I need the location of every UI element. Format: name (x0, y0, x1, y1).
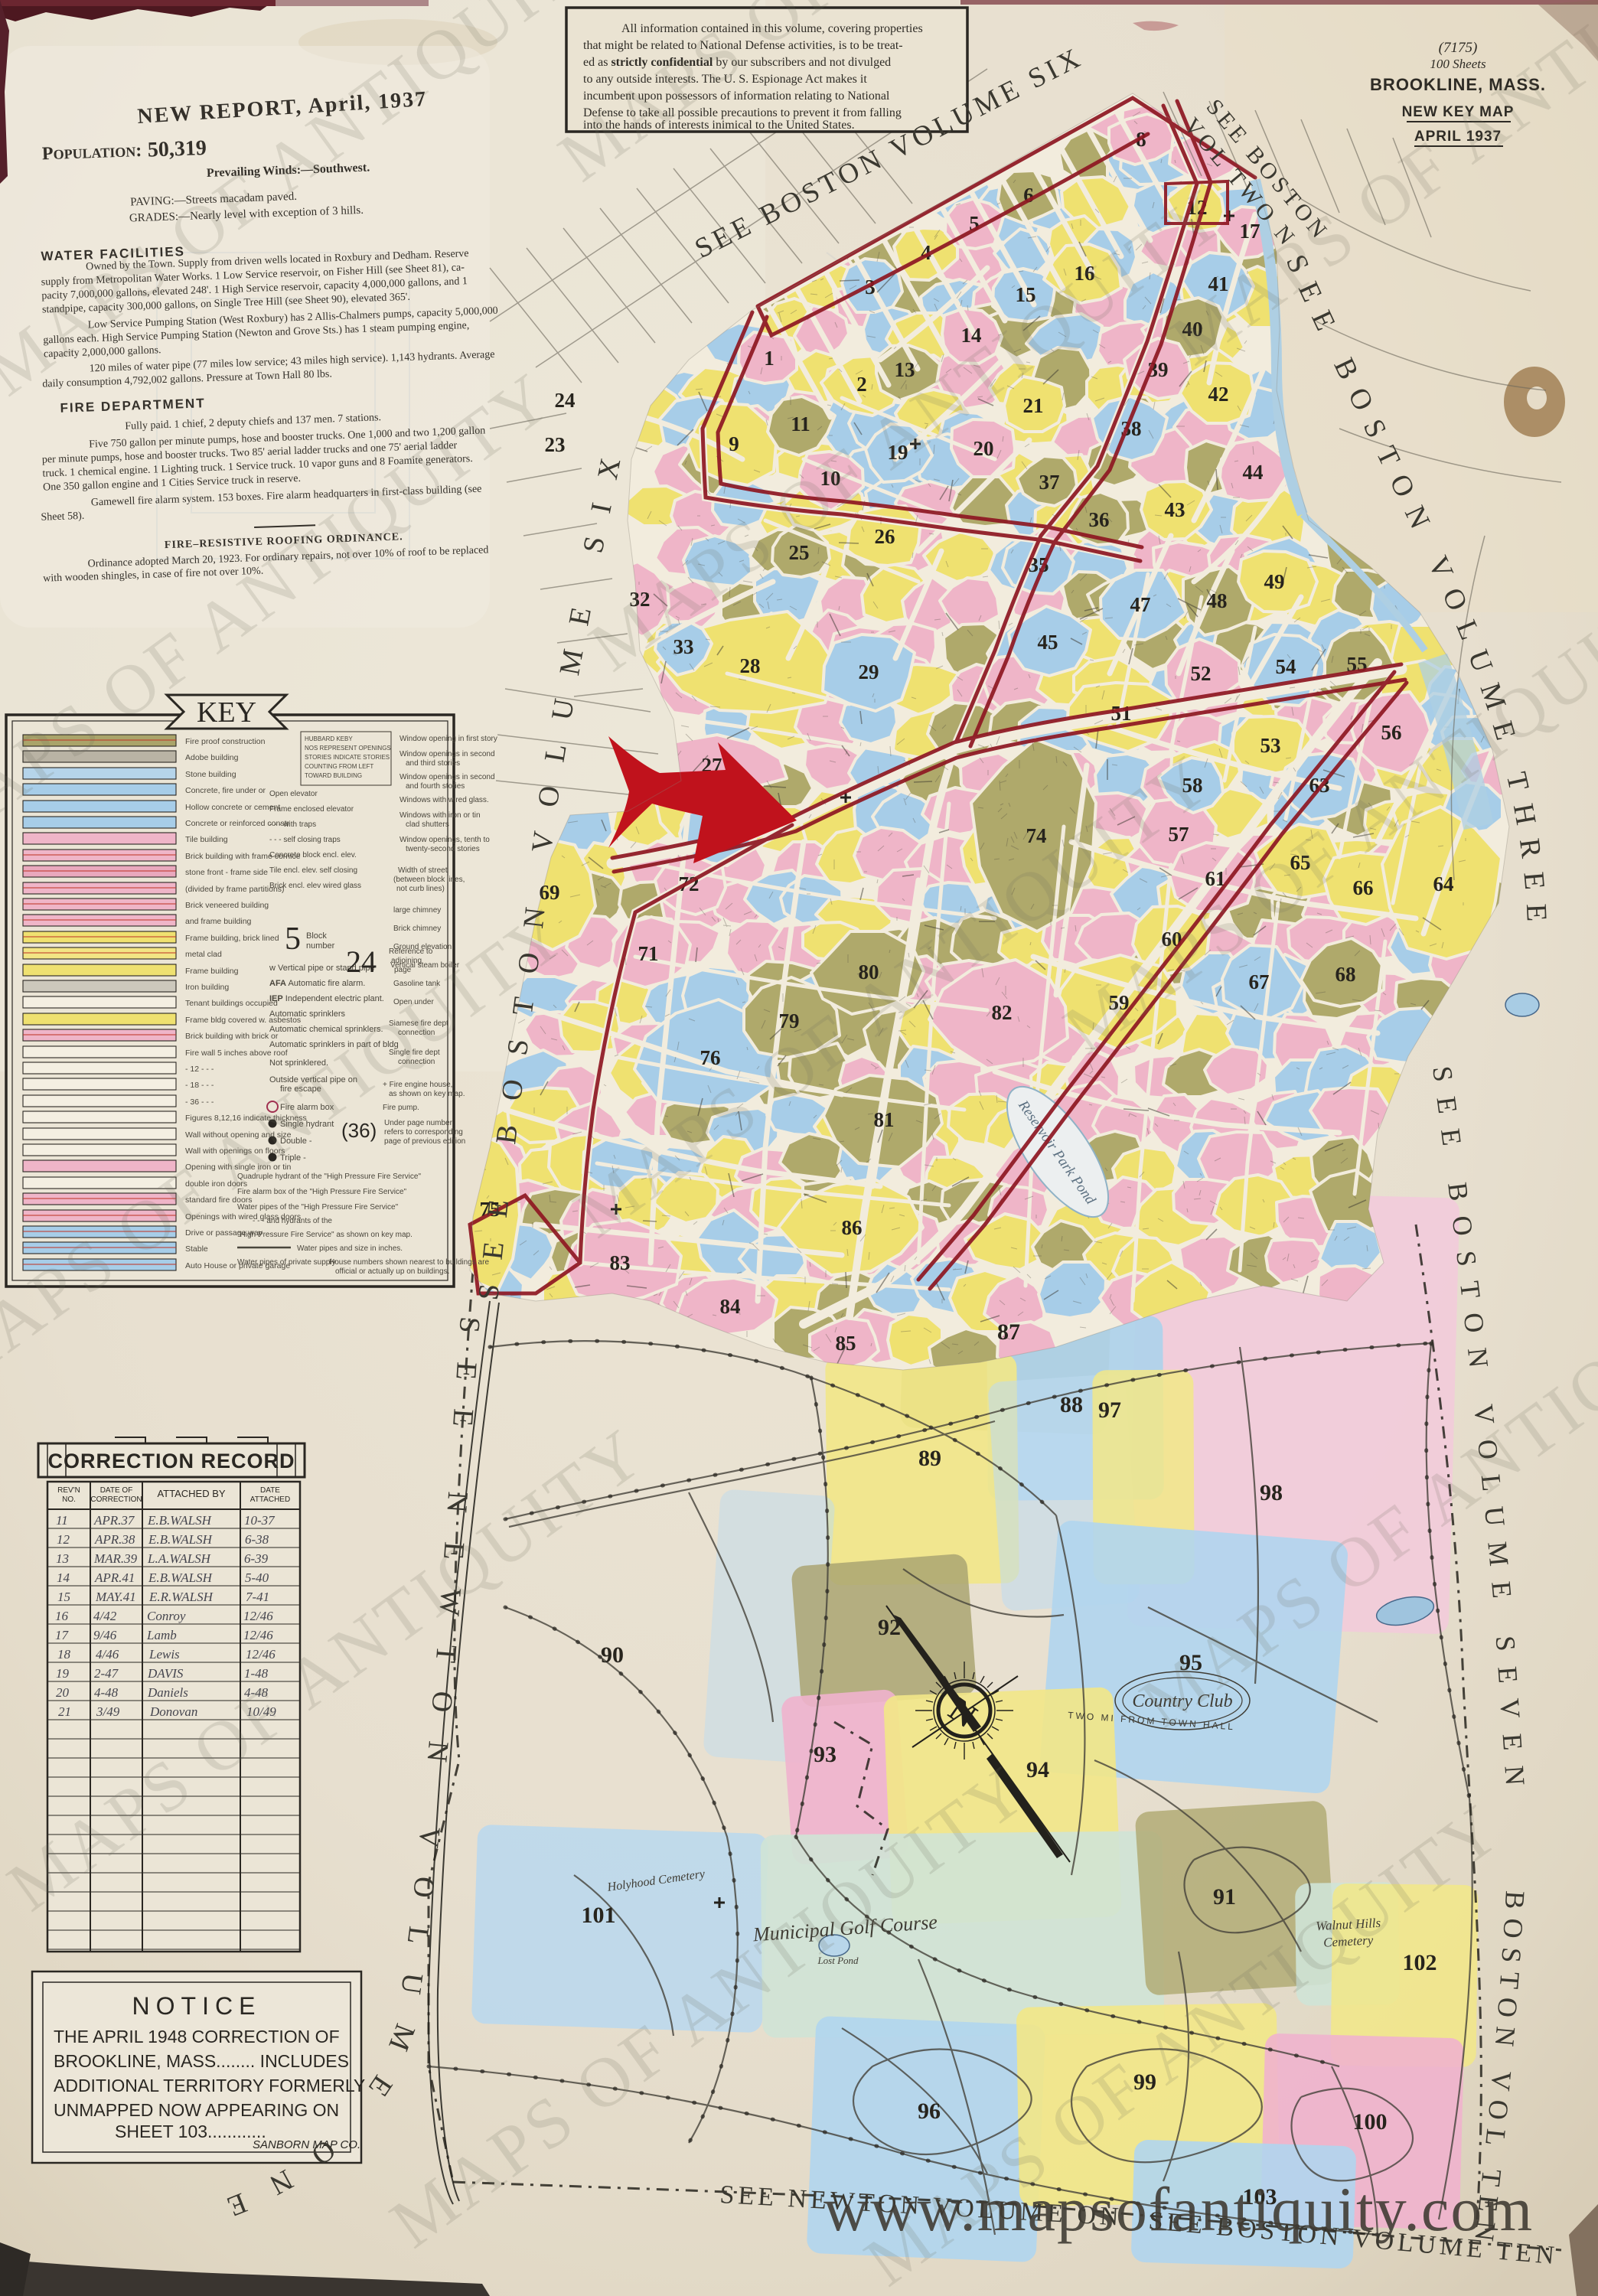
svg-text:48: 48 (1207, 589, 1228, 612)
svg-text:NO.: NO. (62, 1495, 76, 1504)
svg-text:20: 20 (973, 437, 994, 460)
svg-text:Concrete, fire under or: Concrete, fire under or (185, 786, 266, 795)
svg-text:29: 29 (859, 660, 879, 683)
svg-text:2: 2 (856, 373, 867, 396)
svg-text:Water pipes and size in inches: Water pipes and size in inches. (297, 1244, 403, 1253)
svg-text:L.A.WALSH: L.A.WALSH (147, 1551, 212, 1566)
svg-text:ATTACHED: ATTACHED (250, 1495, 290, 1504)
svg-text:AFA Automatic fire alarm.: AFA Automatic fire alarm. (269, 979, 365, 988)
svg-text:94: 94 (1026, 1757, 1049, 1782)
svg-text:DAVIS: DAVIS (147, 1666, 184, 1681)
svg-text:45: 45 (1038, 631, 1058, 654)
svg-text:Brick building with brick or: Brick building with brick or (185, 1032, 279, 1041)
svg-text:64: 64 (1433, 872, 1454, 895)
svg-text:50,319: 50,319 (147, 136, 207, 162)
svg-text:Width of street: Width of street (398, 866, 448, 875)
svg-text:ATTACHED BY: ATTACHED BY (157, 1488, 225, 1499)
svg-text:84: 84 (720, 1295, 741, 1318)
svg-text:Frame building: Frame building (185, 967, 239, 976)
svg-text:23: 23 (545, 433, 566, 456)
svg-text:Lewis: Lewis (148, 1647, 180, 1662)
svg-text:Open elevator: Open elevator (269, 790, 318, 798)
svg-text:5-40: 5-40 (245, 1570, 269, 1585)
svg-text:adjoining: adjoining (391, 957, 422, 965)
svg-text:DATE: DATE (260, 1486, 280, 1495)
svg-text:91: 91 (1213, 1884, 1236, 1910)
svg-text:- 18 - - -: - 18 - - - (185, 1081, 214, 1090)
svg-text:Brick encl. elev wired glass: Brick encl. elev wired glass (269, 882, 361, 890)
svg-text:NOS REPRESENT OPENINGS: NOS REPRESENT OPENINGS (305, 745, 391, 752)
svg-text:Fire pump.: Fire pump. (383, 1104, 419, 1112)
svg-text:90: 90 (601, 1642, 624, 1668)
svg-text:E.B.WALSH: E.B.WALSH (147, 1513, 213, 1528)
svg-text:KEY: KEY (197, 696, 256, 729)
svg-text:Water pipes of the "High Press: Water pipes of the "High Pressure Fire S… (237, 1203, 399, 1212)
svg-text:Window opening in first story: Window opening in first story (399, 735, 497, 743)
svg-text:(7175): (7175) (1439, 40, 1478, 56)
svg-text:18: 18 (57, 1647, 71, 1662)
svg-text:Water pipes of private supply: Water pipes of private supply (237, 1258, 336, 1267)
svg-text:Stone building: Stone building (185, 770, 236, 779)
svg-text:19: 19 (56, 1666, 70, 1681)
svg-text:12/46: 12/46 (243, 1628, 273, 1642)
svg-text:Tile encl. elev. self closing: Tile encl. elev. self closing (269, 866, 357, 875)
svg-text:Fire proof construction: Fire proof construction (185, 737, 266, 746)
svg-text:metal clad: metal clad (185, 950, 222, 959)
svg-text:89: 89 (918, 1446, 941, 1471)
svg-text:2-47: 2-47 (94, 1666, 119, 1681)
svg-text:- 36 - - -: - 36 - - - (185, 1097, 214, 1107)
svg-text:- - - with traps: - - - with traps (269, 820, 316, 829)
svg-text:Fire wall 5 inches above roof: Fire wall 5 inches above roof (185, 1049, 288, 1058)
svg-text:17: 17 (1240, 220, 1260, 243)
svg-text:15: 15 (57, 1590, 70, 1604)
svg-text:21: 21 (1023, 394, 1044, 417)
svg-text:E.B.WALSH: E.B.WALSH (148, 1532, 214, 1547)
svg-text:clad shutters: clad shutters (406, 820, 449, 829)
svg-text:Brick veneered building: Brick veneered building (185, 901, 269, 910)
svg-text:100: 100 (1353, 2109, 1388, 2135)
svg-text:44: 44 (1243, 461, 1264, 484)
svg-text:MAY.41: MAY.41 (95, 1590, 136, 1604)
svg-text:56: 56 (1381, 721, 1402, 744)
svg-text:17: 17 (55, 1628, 70, 1642)
svg-text:4-48: 4-48 (94, 1685, 119, 1700)
svg-text:101: 101 (582, 1903, 616, 1928)
svg-text:5: 5 (285, 921, 301, 957)
svg-text:4/42: 4/42 (93, 1609, 117, 1623)
svg-text:37: 37 (1039, 471, 1060, 494)
svg-text:1: 1 (764, 347, 775, 370)
svg-text:www.mapsofantiquity.com: www.mapsofantiquity.com (823, 2174, 1534, 2244)
svg-text:97: 97 (1098, 1397, 1121, 1423)
svg-text:CORRECTION RECORD: CORRECTION RECORD (47, 1450, 295, 1473)
svg-text:83: 83 (610, 1251, 631, 1274)
svg-text:and frame building: and frame building (185, 917, 252, 926)
svg-text:MAR.39: MAR.39 (93, 1551, 138, 1566)
svg-text:76: 76 (700, 1046, 721, 1069)
svg-text:twenty-second stories: twenty-second stories (406, 845, 480, 853)
svg-text:Windows with iron or tin: Windows with iron or tin (399, 811, 481, 820)
svg-text:12/46: 12/46 (246, 1647, 276, 1662)
svg-text:93: 93 (814, 1742, 837, 1767)
svg-text:Lamb: Lamb (146, 1628, 177, 1642)
svg-text:68: 68 (1335, 963, 1356, 986)
svg-text:Fire alarm box of the "High Pr: Fire alarm box of the "High Pressure Fir… (237, 1188, 407, 1196)
svg-text:APR.41: APR.41 (94, 1570, 135, 1585)
svg-text:Windows with wired glass.: Windows with wired glass. (399, 796, 489, 804)
svg-text:STORIES INDICATE STORIES: STORIES INDICATE STORIES (305, 754, 390, 761)
svg-text:ADDITIONAL TERRITORY FORMERLY: ADDITIONAL TERRITORY FORMERLY (54, 2076, 365, 2095)
svg-text:CORRECTION: CORRECTION (90, 1495, 142, 1504)
svg-text:71: 71 (638, 942, 659, 965)
svg-text:Donovan: Donovan (149, 1704, 197, 1719)
svg-text:24: 24 (346, 944, 377, 979)
svg-text:81: 81 (874, 1108, 895, 1131)
svg-text:UNMAPPED NOW APPEARING ON: UNMAPPED NOW APPEARING ON (54, 2100, 339, 2120)
svg-text:20: 20 (56, 1685, 70, 1700)
svg-text:Window openings, tenth to: Window openings, tenth to (399, 836, 490, 844)
svg-text:House numbers shown nearest to: House numbers shown nearest to buildings… (329, 1258, 489, 1267)
svg-text:Stable: Stable (185, 1244, 208, 1254)
svg-text:official or actually up on bui: official or actually up on buildings. (335, 1267, 449, 1276)
svg-text:96: 96 (918, 2099, 941, 2124)
svg-text:Window openings in second: Window openings in second (399, 773, 495, 781)
svg-text:92: 92 (878, 1615, 901, 1640)
svg-text:47: 47 (1130, 593, 1151, 616)
svg-text:7-41: 7-41 (246, 1590, 269, 1604)
svg-text:Concrete block encl. elev.: Concrete block encl. elev. (269, 851, 357, 859)
svg-text:stone front - frame side: stone front - frame side (185, 868, 268, 877)
svg-text:SHEET 103............: SHEET 103............ (115, 2122, 266, 2141)
svg-text:67: 67 (1249, 970, 1270, 993)
svg-text:Sheet 58).: Sheet 58). (41, 510, 84, 523)
svg-text:53: 53 (1260, 734, 1281, 757)
svg-text:- - - and hydrants of the: - - - and hydrants of the (253, 1217, 332, 1225)
svg-text:36: 36 (1089, 508, 1110, 531)
svg-text:APR.37: APR.37 (93, 1513, 135, 1528)
svg-text:Brick chimney: Brick chimney (393, 925, 441, 933)
svg-text:12: 12 (57, 1532, 70, 1547)
svg-text:- 12 - - -: - 12 - - - (185, 1065, 214, 1074)
svg-text:E.B.WALSH: E.B.WALSH (148, 1570, 214, 1585)
svg-text:not curb lines): not curb lines) (396, 885, 445, 893)
svg-text:87: 87 (997, 1319, 1020, 1345)
svg-text:52: 52 (1191, 662, 1212, 685)
svg-text:Block: Block (306, 931, 327, 941)
svg-text:88: 88 (1060, 1392, 1083, 1417)
svg-text:6-39: 6-39 (244, 1551, 269, 1566)
svg-text:86: 86 (842, 1216, 863, 1239)
svg-text:100 Sheets: 100 Sheets (1430, 57, 1486, 71)
svg-text:number: number (306, 941, 335, 951)
svg-text:APR.38: APR.38 (94, 1532, 135, 1547)
svg-text:9/46: 9/46 (93, 1628, 117, 1642)
svg-text:large chimney: large chimney (393, 906, 441, 915)
svg-text:page: page (394, 966, 412, 974)
svg-text:BROOKLINE, MASS........ INCLUD: BROOKLINE, MASS........ INCLUDES (54, 2051, 349, 2071)
svg-text:Frame building, brick lined: Frame building, brick lined (185, 934, 279, 943)
svg-text:11: 11 (791, 413, 810, 435)
svg-text:43: 43 (1165, 498, 1185, 521)
svg-text:11: 11 (56, 1513, 68, 1528)
svg-text:10-37: 10-37 (244, 1513, 276, 1528)
svg-text:49: 49 (1264, 570, 1285, 593)
svg-text:"High Pressure Fire Service" a: "High Pressure Fire Service" as shown on… (237, 1231, 413, 1239)
svg-text:Under page number: Under page number (384, 1119, 453, 1127)
svg-text:51: 51 (1111, 702, 1132, 725)
svg-text:NOTICE: NOTICE (132, 1992, 262, 2020)
svg-text:Adobe building: Adobe building (185, 753, 239, 762)
svg-text:82: 82 (992, 1001, 1013, 1024)
svg-text:14: 14 (57, 1570, 70, 1585)
svg-text:Daniels: Daniels (147, 1685, 188, 1700)
svg-text:13: 13 (56, 1551, 69, 1566)
svg-text:Automatic sprinklers: Automatic sprinklers (269, 1009, 346, 1019)
svg-text:42: 42 (1208, 383, 1229, 406)
svg-text:98: 98 (1260, 1480, 1283, 1505)
svg-text:Tile building: Tile building (185, 835, 228, 844)
svg-text:HUBBARD KEBY: HUBBARD KEBY (305, 735, 353, 742)
svg-text:THE APRIL 1948 CORRECTION OF: THE APRIL 1948 CORRECTION OF (54, 2027, 340, 2047)
svg-text:16: 16 (55, 1609, 69, 1623)
svg-text:Reference to: Reference to (389, 947, 433, 956)
svg-text:page of previous edition: page of previous edition (384, 1137, 465, 1146)
svg-text:Tenant buildings occupied: Tenant buildings occupied (185, 999, 278, 1008)
svg-text:(between block lines,: (between block lines, (393, 876, 465, 884)
svg-text:as shown on key map.: as shown on key map. (389, 1090, 465, 1098)
svg-text:REV'N: REV'N (57, 1486, 80, 1495)
svg-text:Conroy: Conroy (147, 1609, 186, 1623)
svg-text:and third stories: and third stories (406, 759, 460, 768)
svg-text:9: 9 (729, 432, 739, 455)
svg-text:54: 54 (1276, 655, 1296, 678)
svg-text:6-38: 6-38 (245, 1532, 269, 1547)
svg-text:Hollow concrete or cement: Hollow concrete or cement (185, 803, 280, 812)
svg-text:E.R.WALSH: E.R.WALSH (148, 1590, 214, 1604)
svg-text:85: 85 (836, 1332, 856, 1355)
svg-text:Frame enclosed elevator: Frame enclosed elevator (269, 805, 354, 814)
svg-text:28: 28 (740, 654, 761, 677)
svg-text:3/49: 3/49 (96, 1704, 120, 1719)
svg-text:TOWARD BUILDING: TOWARD BUILDING (305, 772, 362, 779)
svg-text:12/46: 12/46 (243, 1609, 273, 1623)
svg-text:Window openings in second: Window openings in second (399, 750, 495, 758)
svg-text:4/46: 4/46 (96, 1647, 119, 1662)
svg-text:102: 102 (1403, 1950, 1437, 1975)
svg-text:- - - self closing traps: - - - self closing traps (269, 836, 341, 844)
svg-text:refers to corresponding: refers to corresponding (384, 1128, 463, 1137)
svg-text:Iron building: Iron building (185, 983, 229, 992)
svg-text:26: 26 (875, 525, 895, 548)
svg-text:IEP Independent electric plant: IEP Independent electric plant. (269, 994, 384, 1003)
svg-text:66: 66 (1353, 876, 1374, 899)
svg-text:21: 21 (58, 1704, 71, 1719)
svg-text:and fourth stories: and fourth stories (406, 782, 465, 791)
svg-text:COUNTING FROM LEFT: COUNTING FROM LEFT (305, 763, 373, 770)
svg-text:DATE OF: DATE OF (100, 1486, 133, 1495)
